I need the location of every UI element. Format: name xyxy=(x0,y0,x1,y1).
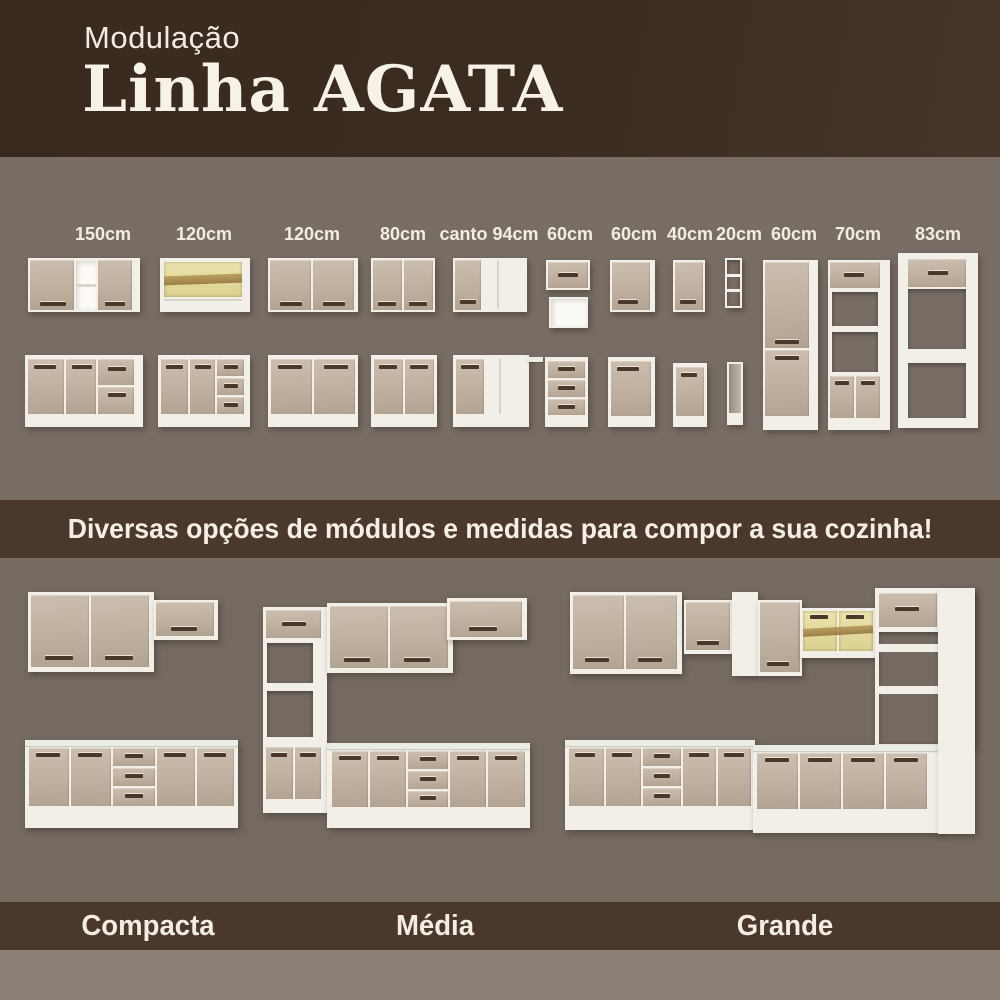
kitchen-grande-upper-hood xyxy=(684,600,732,654)
header-band: Modulação Linha AGATA xyxy=(0,0,1000,157)
module-tall-pantry-60cm xyxy=(763,260,818,430)
module-base-60cm xyxy=(608,357,655,427)
kitchen-media-upper-step xyxy=(447,598,527,640)
module-base-40cm xyxy=(673,363,707,427)
module-base-150cm xyxy=(25,355,143,427)
kitchen-grande-upper-left xyxy=(570,592,682,674)
module-upper-120cm-glass xyxy=(160,258,250,312)
module-tall-fridge-frame-83cm xyxy=(898,253,978,428)
module-base-60cm-drawers xyxy=(545,357,588,427)
module-open-niche-60cm xyxy=(549,297,588,328)
kitchen-grande-upper-glass xyxy=(800,608,876,658)
header-kicker: Modulação xyxy=(84,20,240,56)
module-shelf-rack-20cm xyxy=(725,258,742,308)
kitchen-compacta-upper-step xyxy=(154,600,218,640)
module-base-corner-94cm xyxy=(453,355,529,427)
poster-canvas: Modulação Linha AGATA 150cm 120cm 120cm … xyxy=(0,0,1000,1000)
kitchen-grande-corner-panel xyxy=(732,592,758,676)
module-upper-60cm xyxy=(610,260,655,312)
kitchen-label-compacta: Compacta xyxy=(44,910,253,943)
module-upper-60cm-flap xyxy=(546,260,590,290)
banner-text: Diversas opções de módulos e medidas par… xyxy=(68,513,933,545)
module-size-label: 83cm xyxy=(876,224,1000,245)
kitchen-grande-base-left xyxy=(565,740,755,830)
kitchen-label-media: Média xyxy=(331,910,540,943)
kitchen-media-upper xyxy=(327,603,453,673)
module-size-label: 120cm xyxy=(142,224,266,245)
kitchen-label-grande: Grande xyxy=(681,910,890,943)
module-base-80cm xyxy=(371,355,437,427)
module-upper-80cm xyxy=(371,258,435,312)
module-base-120cm xyxy=(268,355,358,427)
module-upper-120cm xyxy=(268,258,358,312)
kitchen-grande-upper-corner xyxy=(758,600,802,676)
module-upper-40cm xyxy=(673,260,705,312)
kitchen-media-base xyxy=(327,743,530,828)
module-upper-corner-94cm xyxy=(453,258,527,312)
kitchen-compacta-upper xyxy=(28,592,154,672)
corner-countertop-extension xyxy=(527,357,543,362)
module-upper-150cm xyxy=(28,258,140,312)
kitchen-media-tower xyxy=(263,607,327,813)
banner-band: Diversas opções de módulos e medidas par… xyxy=(0,500,1000,558)
kitchen-grande-base-right xyxy=(753,745,943,833)
kitchen-grande-tower-side-panel xyxy=(938,588,975,834)
kitchen-compacta-base xyxy=(25,740,238,828)
page-title: Linha AGATA xyxy=(82,52,563,127)
bottom-strip xyxy=(0,950,1000,1000)
module-tall-oven-tower-70cm xyxy=(828,260,890,430)
module-base-120cm-drawers xyxy=(158,355,250,427)
module-niche-20cm xyxy=(727,362,743,425)
